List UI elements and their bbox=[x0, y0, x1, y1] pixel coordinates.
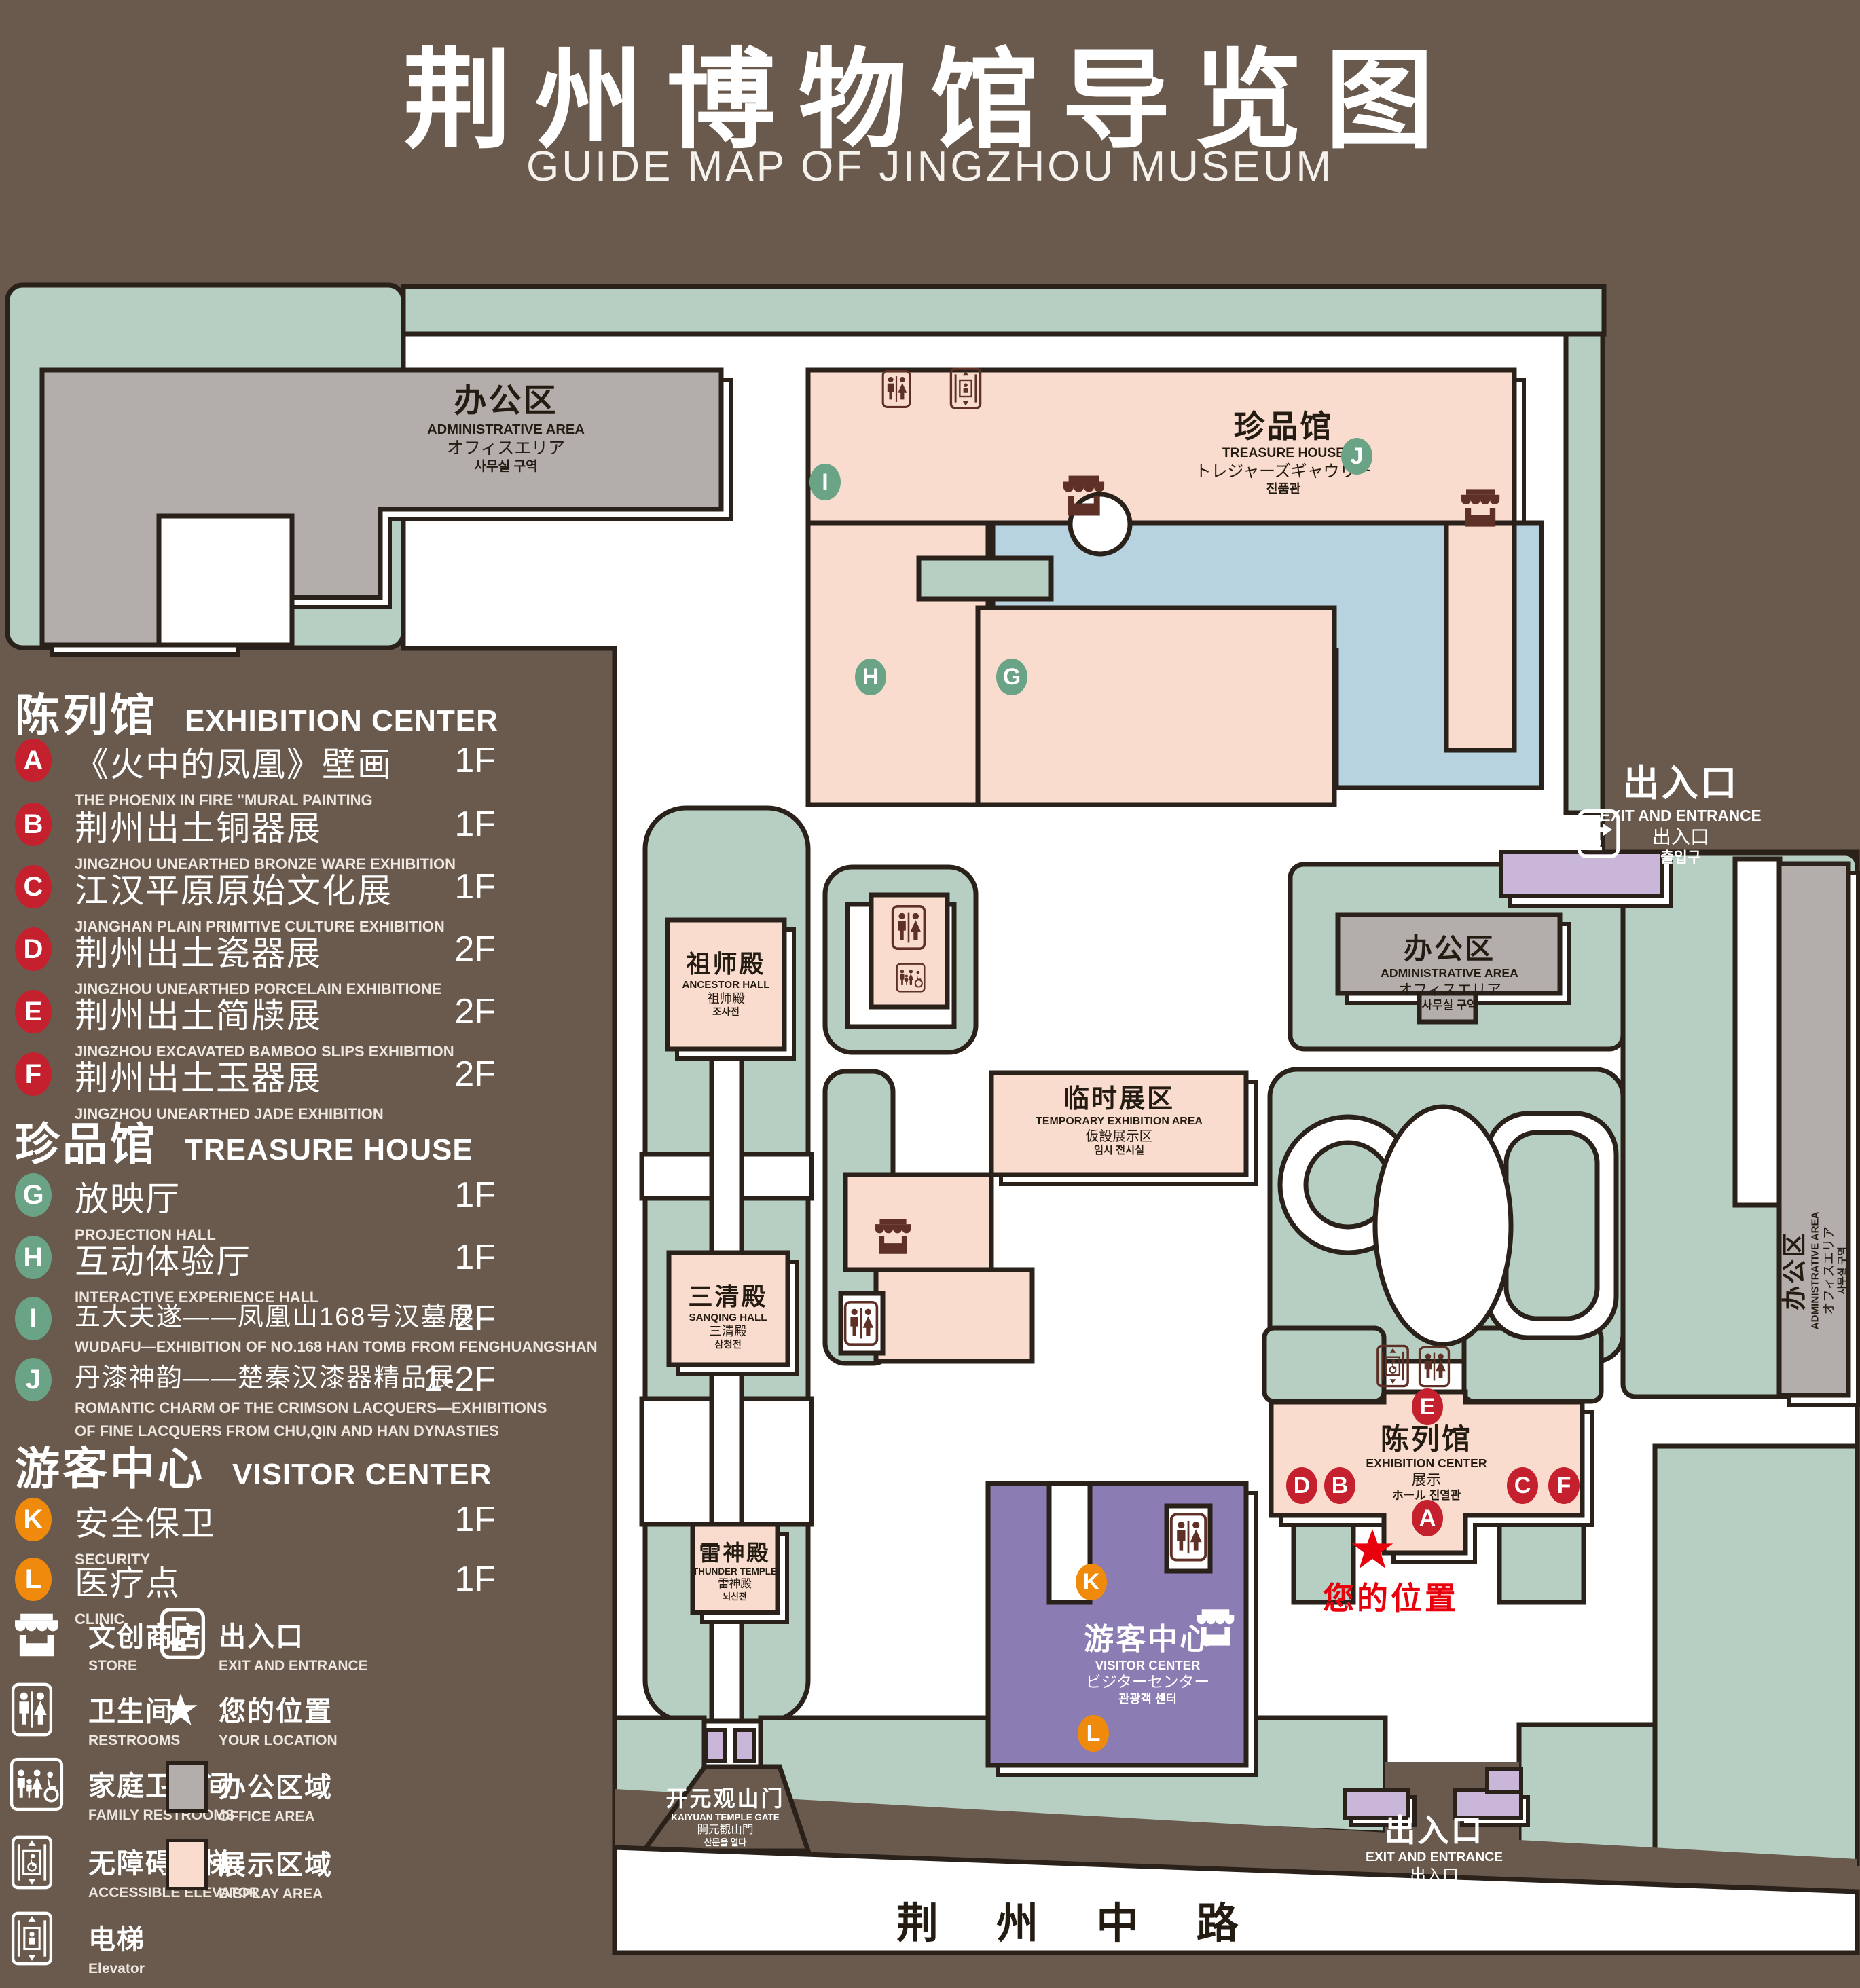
legend-item-floor: 2F bbox=[454, 1054, 496, 1094]
exit-icon bbox=[160, 1606, 205, 1664]
legend-section-title-zh: 陈列馆 bbox=[15, 679, 158, 744]
legend-marker-g: G bbox=[15, 1173, 52, 1217]
legend-section-title-en: VISITOR CENTER bbox=[232, 1458, 492, 1492]
legend-item-d: D 荆州出土瓷器展 JINGZHOU UNEARTHED PORCELAIN E… bbox=[15, 926, 496, 998]
restrooms-icon bbox=[1418, 1346, 1451, 1391]
family-restrooms-icon bbox=[896, 959, 926, 1000]
pond bbox=[1375, 1107, 1511, 1344]
legend-item-e: E 荆州出土简牍展 JINGZHOU EXCAVATED BAMBOO SLIP… bbox=[15, 989, 496, 1061]
legend-item-floor: 1F bbox=[454, 1175, 496, 1215]
store-icon bbox=[1193, 1608, 1238, 1651]
legend-item-subtitle: WUDAFU—EXHIBITION OF NO.168 HAN TOMB FRO… bbox=[75, 1338, 496, 1356]
legend-item-title: 荆州出土铜器展 bbox=[75, 801, 496, 850]
treasure-house-building bbox=[808, 370, 1542, 805]
symbol-label-zh: 您的位置 bbox=[219, 1689, 338, 1729]
map-marker-e: E bbox=[1412, 1388, 1443, 1425]
legend-symbol-office-label: 办公区域 OFFICE AREA bbox=[219, 1765, 333, 1825]
legend-marker-d: D bbox=[15, 927, 52, 971]
legend-item-c: C 江汉平原原始文化展 JIANGHAN PLAIN PRIMITIVE CUL… bbox=[15, 864, 496, 936]
legend-section-title-en: TREASURE HOUSE bbox=[185, 1133, 473, 1167]
restrooms-icon bbox=[881, 368, 911, 413]
legend-item-title: 互动体验厅 bbox=[75, 1234, 496, 1283]
legend-symbol-location-label: 您的位置 YOUR LOCATION bbox=[219, 1689, 338, 1749]
legend-marker-h: H bbox=[15, 1236, 52, 1279]
sanqing-hall-building bbox=[669, 1253, 797, 1374]
symbol-label-en: OFFICE AREA bbox=[219, 1809, 333, 1825]
map-marker-j: J bbox=[1341, 438, 1372, 475]
map-marker-a: A bbox=[1412, 1500, 1443, 1536]
legend-item-floor: 1F bbox=[454, 1237, 496, 1278]
legend-item-floor: 2F bbox=[454, 929, 496, 970]
legend-item-floor: 1F bbox=[454, 1559, 496, 1600]
legend-section-title-en: EXHIBITION CENTER bbox=[185, 704, 498, 738]
your-location-label: 您的位置 bbox=[1323, 1574, 1459, 1619]
legend-marker-f: F bbox=[15, 1052, 52, 1096]
symbol-label-en: FAMILY RESTROOMS bbox=[88, 1807, 235, 1824]
symbol-label-zh: 出入口 bbox=[219, 1615, 368, 1654]
legend-item-i: I 五大夫遂——凤凰山168号汉墓展 WUDAFU—EXHIBITION OF … bbox=[15, 1295, 496, 1356]
symbol-label-en: Elevator bbox=[88, 1961, 145, 1977]
south-gate-structure bbox=[1455, 1790, 1521, 1818]
legend-item-title: 放映厅 bbox=[75, 1172, 496, 1221]
map-marker-f: F bbox=[1548, 1467, 1580, 1504]
guide-map-poster: 荆州博物馆导览图 GUIDE MAP OF JINGZHOU MUSEUM 陈列… bbox=[0, 0, 1860, 1988]
legend-symbol-accessible-elevator bbox=[11, 1835, 53, 1894]
legend-marker-j: J bbox=[15, 1358, 52, 1401]
map-marker-i: I bbox=[809, 464, 841, 500]
symbol-label-en: EXIT AND ENTRANCE bbox=[219, 1658, 368, 1674]
road-name: 荆 州 中 路 bbox=[896, 1889, 1262, 1950]
south-gate-structure bbox=[1487, 1769, 1521, 1792]
legend-marker-l: L bbox=[15, 1558, 52, 1601]
legend-marker-i: I bbox=[15, 1297, 52, 1340]
map-marker-h: H bbox=[855, 659, 886, 695]
store-icon bbox=[1057, 474, 1111, 521]
exit-icon bbox=[1577, 809, 1620, 862]
symbol-label-zh: 展示区域 bbox=[219, 1843, 333, 1882]
legend-marker-e: E bbox=[15, 990, 52, 1033]
gate-pillar bbox=[706, 1730, 725, 1761]
legend-item-j: J 丹漆神韵——楚秦汉漆器精品展 ROMANTIC CHARM OF THE C… bbox=[15, 1357, 496, 1440]
elevator-icon bbox=[949, 367, 982, 413]
symbol-label-en: DISPLAY AREA bbox=[219, 1886, 333, 1902]
store-icon bbox=[1455, 487, 1506, 532]
symbol-label-zh: 办公区域 bbox=[219, 1765, 333, 1805]
legend-symbol-location bbox=[163, 1693, 198, 1731]
restrooms-icon bbox=[11, 1681, 53, 1742]
accessible-elevator-icon bbox=[11, 1835, 53, 1894]
legend-symbol-family-label: 家庭卫生间 FAMILY RESTROOMS bbox=[88, 1764, 235, 1824]
legend-item-floor: 2F bbox=[454, 1298, 496, 1339]
legend-item-b: B 荆州出土铜器展 JINGZHOU UNEARTHED BRONZE WARE… bbox=[15, 801, 496, 873]
legend-section-title-zh: 珍品馆 bbox=[15, 1108, 158, 1173]
map-marker-d: D bbox=[1286, 1467, 1317, 1504]
map-marker-c: C bbox=[1507, 1467, 1538, 1504]
your-location-star-icon bbox=[1350, 1529, 1395, 1575]
legend-item-subtitle: ROMANTIC CHARM OF THE CRIMSON LACQUERS—E… bbox=[75, 1399, 496, 1417]
legend-item-title: 安全保卫 bbox=[75, 1496, 496, 1545]
symbol-label-zh: 家庭卫生间 bbox=[88, 1764, 235, 1803]
legend-marker-b: B bbox=[15, 803, 52, 846]
family-restrooms-icon bbox=[10, 1757, 64, 1815]
your-location-star-icon bbox=[163, 1693, 198, 1731]
legend-item-title: 《火中的凤凰》壁画 bbox=[75, 737, 496, 786]
elevator-icon bbox=[11, 1911, 53, 1970]
symbol-label-en: RESTROOMS bbox=[88, 1733, 180, 1749]
map-marker-b: B bbox=[1324, 1467, 1355, 1504]
legend-section-treasure-house: 珍品馆 TREASURE HOUSE bbox=[15, 1108, 473, 1173]
symbol-label-zh: 电梯 bbox=[88, 1917, 145, 1957]
legend-symbol-elevator bbox=[11, 1911, 53, 1970]
legend-symbol-exit bbox=[160, 1606, 205, 1664]
legend-item-g: G 放映厅 PROJECTION HALL 1F bbox=[15, 1172, 496, 1244]
accessible-elevator-icon bbox=[1376, 1344, 1410, 1391]
legend-section-visitor-center: 游客中心 VISITOR CENTER bbox=[15, 1433, 492, 1498]
legend-symbol-family-restrooms bbox=[10, 1757, 64, 1815]
south-gate-structure bbox=[1345, 1790, 1408, 1818]
symbol-label-en: YOUR LOCATION bbox=[219, 1733, 338, 1749]
legend-item-title: 江汉平原原始文化展 bbox=[75, 864, 496, 913]
legend-item-floor: 1F bbox=[454, 866, 496, 907]
legend-marker-c: C bbox=[15, 865, 52, 908]
legend-symbol-exit-label: 出入口 EXIT AND ENTRANCE bbox=[219, 1615, 368, 1674]
legend-item-title: 荆州出土瓷器展 bbox=[75, 926, 496, 975]
thunder-temple-building bbox=[693, 1524, 787, 1622]
restrooms-icon bbox=[1169, 1510, 1207, 1568]
legend-section-title-zh: 游客中心 bbox=[15, 1433, 205, 1498]
legend-item-floor: 2F bbox=[454, 991, 496, 1032]
legend-marker-a: A bbox=[15, 739, 52, 782]
gate-pillar bbox=[735, 1730, 754, 1761]
map-marker-g: G bbox=[996, 659, 1027, 695]
legend-marker-k: K bbox=[15, 1498, 52, 1541]
legend-item-floor: 1F bbox=[454, 740, 496, 781]
display-area-swatch bbox=[166, 1839, 208, 1890]
legend-symbol-store bbox=[11, 1612, 62, 1661]
legend-item-title: 五大夫遂——凤凰山168号汉墓展 bbox=[75, 1295, 496, 1333]
map-marker-l: L bbox=[1078, 1715, 1109, 1752]
page-subtitle: GUIDE MAP OF JINGZHOU MUSEUM bbox=[0, 143, 1860, 191]
legend-item-floor: 1F bbox=[454, 1499, 496, 1540]
map-marker-k: K bbox=[1076, 1564, 1107, 1600]
store-icon bbox=[871, 1217, 915, 1259]
legend-symbol-elevator-label: 电梯 Elevator bbox=[88, 1917, 145, 1977]
legend-item-title: 荆州出土简牍展 bbox=[75, 989, 496, 1037]
legend-section-exhibition-center: 陈列馆 EXHIBITION CENTER bbox=[15, 679, 498, 744]
legend-item-floor: 1F bbox=[454, 804, 496, 845]
ancestor-hall-building bbox=[668, 920, 794, 1059]
legend-item-title: 医疗点 bbox=[75, 1556, 496, 1605]
restrooms-icon bbox=[891, 902, 926, 957]
legend-item-title: 荆州出土玉器展 bbox=[75, 1051, 496, 1100]
store-icon bbox=[11, 1612, 62, 1661]
restrooms-icon bbox=[843, 1298, 879, 1352]
legend-symbol-restrooms bbox=[11, 1681, 53, 1742]
office-building-right-edge bbox=[1779, 864, 1858, 1405]
legend-item-a: A 《火中的凤凰》壁画 THE PHOENIX IN FIRE "MURAL P… bbox=[15, 737, 496, 809]
legend-item-floor: 1-2F bbox=[423, 1359, 496, 1400]
office-area-swatch bbox=[166, 1761, 208, 1813]
legend-symbol-display-label: 展示区域 DISPLAY AREA bbox=[219, 1843, 333, 1902]
